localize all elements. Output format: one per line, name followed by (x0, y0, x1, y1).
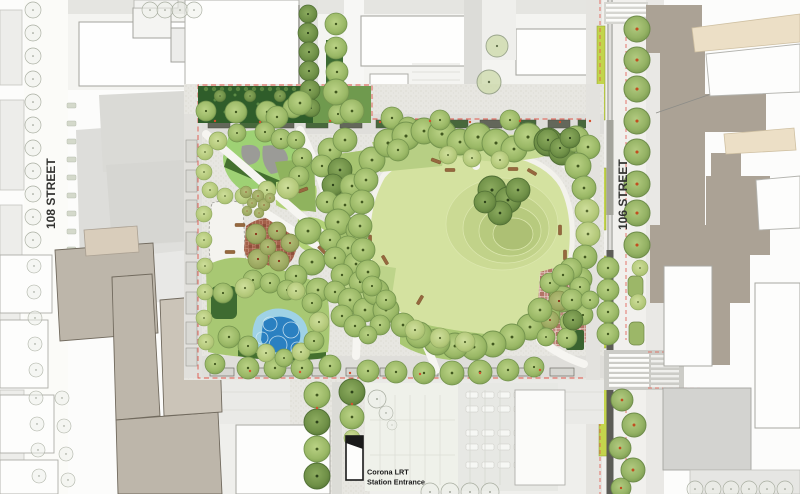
svg-text:Corona LRT: Corona LRT (367, 468, 409, 477)
svg-text:106 STREET: 106 STREET (616, 159, 630, 230)
svg-text:Station Entrance: Station Entrance (367, 478, 425, 487)
svg-text:108 STREET: 108 STREET (44, 158, 58, 229)
